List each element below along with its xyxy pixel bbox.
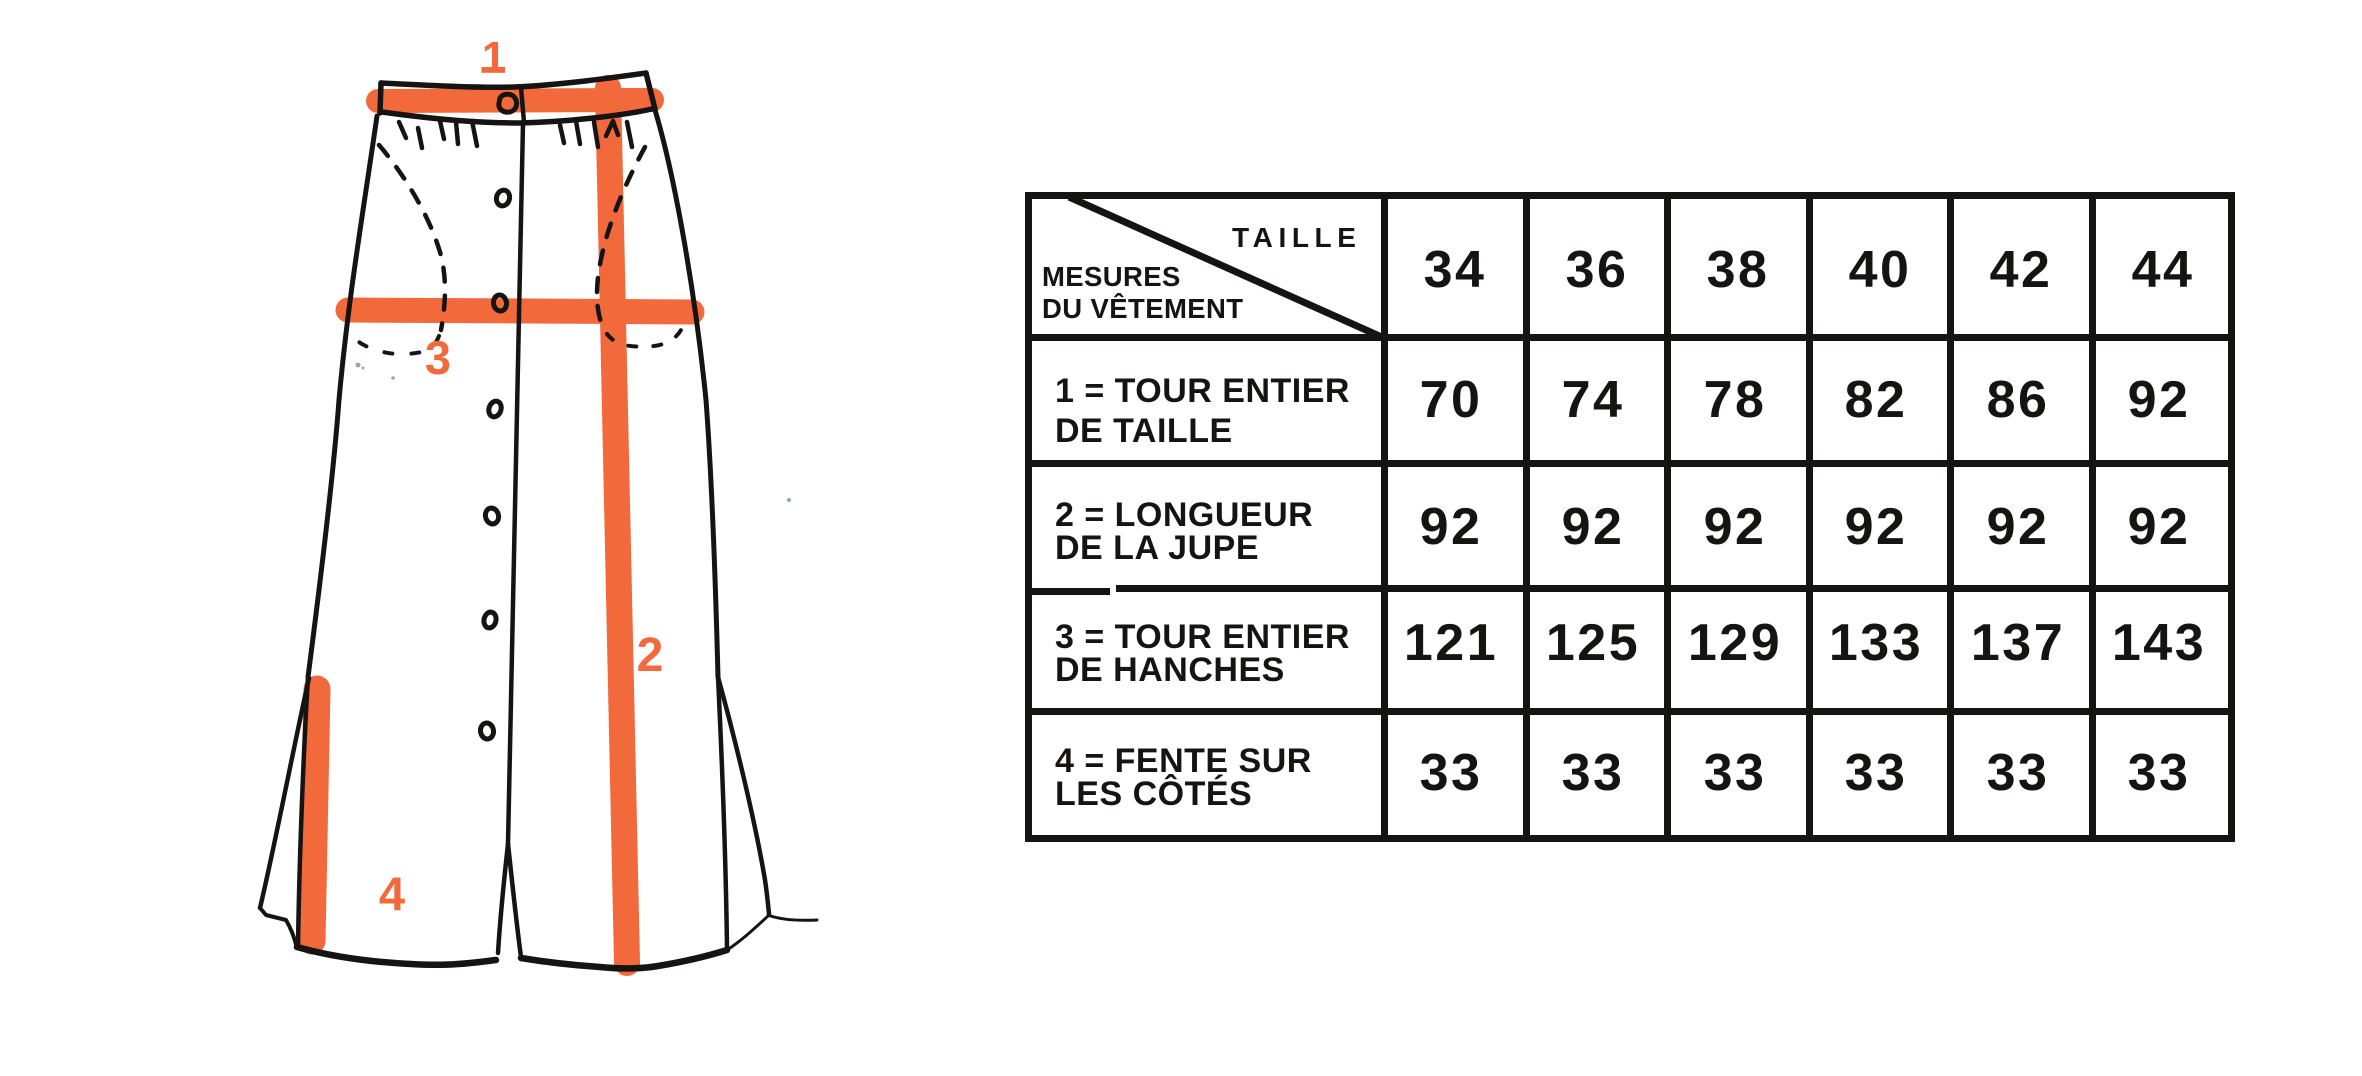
svg-text:70: 70 <box>1420 371 1483 429</box>
svg-text:92: 92 <box>1704 498 1767 556</box>
svg-text:38: 38 <box>1707 241 1770 299</box>
svg-text:DE LA JUPE: DE LA JUPE <box>1055 529 1259 567</box>
svg-text:LES CÔTÉS: LES CÔTÉS <box>1055 774 1252 813</box>
svg-text:33: 33 <box>1420 744 1483 802</box>
svg-text:92: 92 <box>2128 498 2191 556</box>
svg-text:DE HANCHES: DE HANCHES <box>1055 651 1285 689</box>
svg-text:82: 82 <box>1845 371 1908 429</box>
svg-text:33: 33 <box>1562 744 1625 802</box>
svg-text:74: 74 <box>1562 371 1625 429</box>
svg-text:92: 92 <box>1987 498 2050 556</box>
svg-text:DU VÊTEMENT: DU VÊTEMENT <box>1042 293 1244 324</box>
svg-text:125: 125 <box>1546 614 1640 672</box>
svg-text:34: 34 <box>1424 241 1487 299</box>
svg-text:42: 42 <box>1990 241 2053 299</box>
svg-text:143: 143 <box>2112 614 2206 672</box>
svg-text:78: 78 <box>1704 371 1767 429</box>
svg-text:33: 33 <box>2128 744 2191 802</box>
svg-text:86: 86 <box>1987 371 2050 429</box>
svg-text:36: 36 <box>1566 241 1629 299</box>
svg-text:33: 33 <box>1987 744 2050 802</box>
svg-text:1 = TOUR ENTIER: 1 = TOUR ENTIER <box>1055 372 1350 410</box>
svg-text:133: 133 <box>1829 614 1923 672</box>
svg-text:MESURES: MESURES <box>1042 261 1181 292</box>
svg-text:129: 129 <box>1688 614 1782 672</box>
svg-text:TAILLE: TAILLE <box>1232 222 1362 253</box>
svg-text:1: 1 <box>482 33 506 82</box>
svg-text:2: 2 <box>637 629 664 682</box>
svg-text:92: 92 <box>1845 498 1908 556</box>
svg-text:92: 92 <box>2128 371 2191 429</box>
svg-text:33: 33 <box>1704 744 1767 802</box>
svg-text:3: 3 <box>425 331 451 384</box>
svg-text:4: 4 <box>379 867 405 920</box>
svg-text:137: 137 <box>1971 614 2065 672</box>
svg-text:33: 33 <box>1845 744 1908 802</box>
svg-text:44: 44 <box>2132 241 2195 299</box>
svg-text:92: 92 <box>1420 498 1483 556</box>
svg-text:40: 40 <box>1849 241 1912 299</box>
svg-text:DE TAILLE: DE TAILLE <box>1055 412 1233 450</box>
svg-text:121: 121 <box>1404 614 1498 672</box>
svg-text:92: 92 <box>1562 498 1625 556</box>
